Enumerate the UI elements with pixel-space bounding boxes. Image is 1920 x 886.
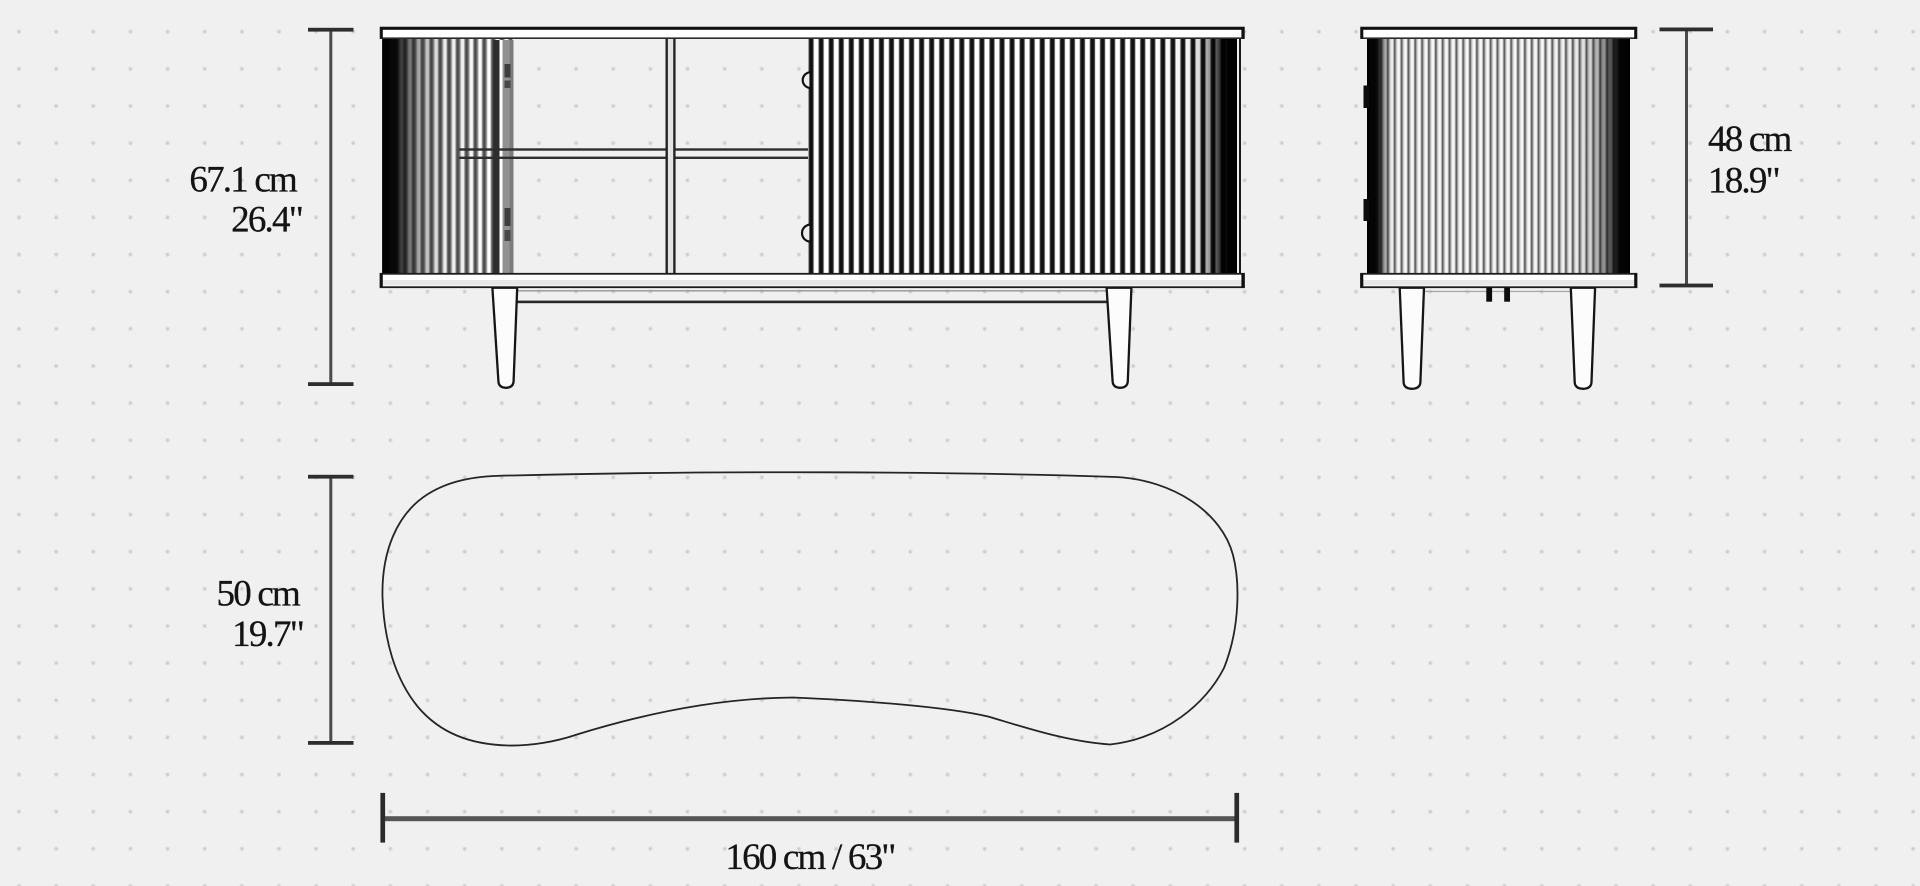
svg-text:67.1 cm: 67.1 cm bbox=[189, 160, 298, 201]
svg-text:19.7": 19.7" bbox=[232, 614, 303, 655]
svg-text:18.9": 18.9" bbox=[1708, 161, 1779, 202]
svg-text:26.4": 26.4" bbox=[231, 200, 302, 241]
svg-text:48 cm: 48 cm bbox=[1708, 119, 1792, 160]
svg-text:50 cm: 50 cm bbox=[217, 574, 301, 615]
svg-text:160 cm / 63": 160 cm / 63" bbox=[725, 837, 894, 878]
